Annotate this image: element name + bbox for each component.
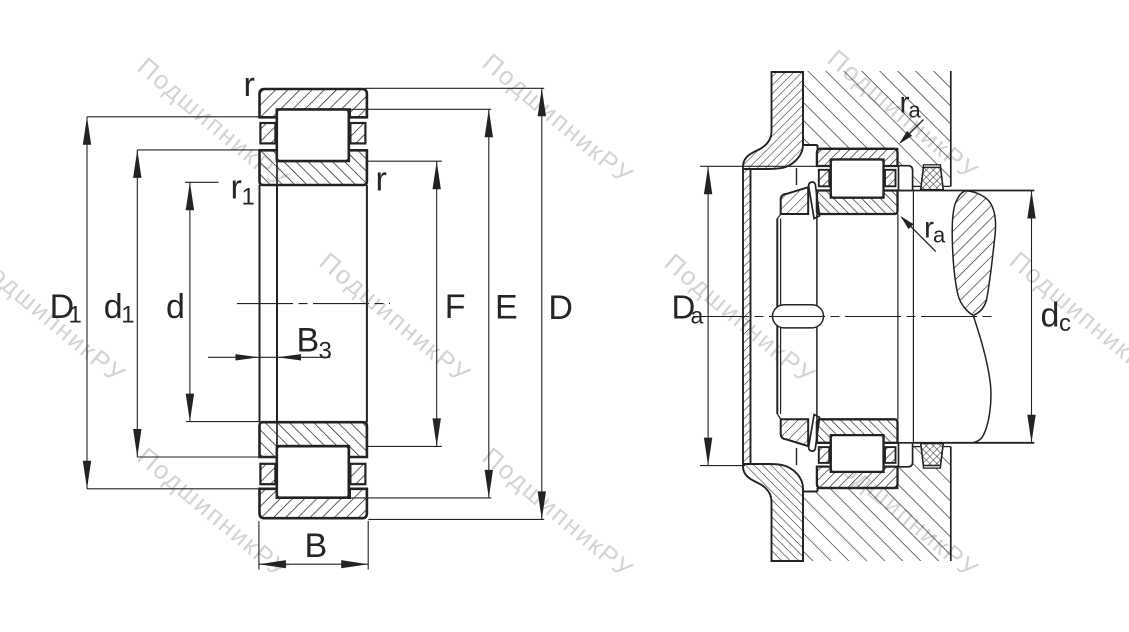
svg-text:1: 1 <box>242 184 255 211</box>
svg-text:d: d <box>166 288 185 326</box>
svg-text:D: D <box>548 289 573 327</box>
svg-text:1: 1 <box>69 302 82 329</box>
svg-text:3: 3 <box>319 338 332 365</box>
svg-text:r: r <box>376 161 387 199</box>
svg-text:B: B <box>305 527 328 565</box>
svg-text:ПодшипникРУ: ПодшипникРУ <box>477 49 638 191</box>
svg-text:a: a <box>909 98 922 123</box>
svg-text:a: a <box>691 303 704 329</box>
svg-text:r: r <box>231 169 242 207</box>
svg-text:1: 1 <box>121 302 134 329</box>
svg-text:a: a <box>933 223 946 248</box>
svg-text:d: d <box>104 288 123 326</box>
svg-text:c: c <box>1059 310 1071 337</box>
svg-text:E: E <box>495 288 518 326</box>
svg-text:r: r <box>244 66 255 104</box>
svg-text:d: d <box>1041 297 1060 335</box>
svg-text:ПодшипникРУ: ПодшипникРУ <box>477 443 638 585</box>
svg-text:F: F <box>445 288 466 326</box>
svg-text:B: B <box>297 322 320 360</box>
